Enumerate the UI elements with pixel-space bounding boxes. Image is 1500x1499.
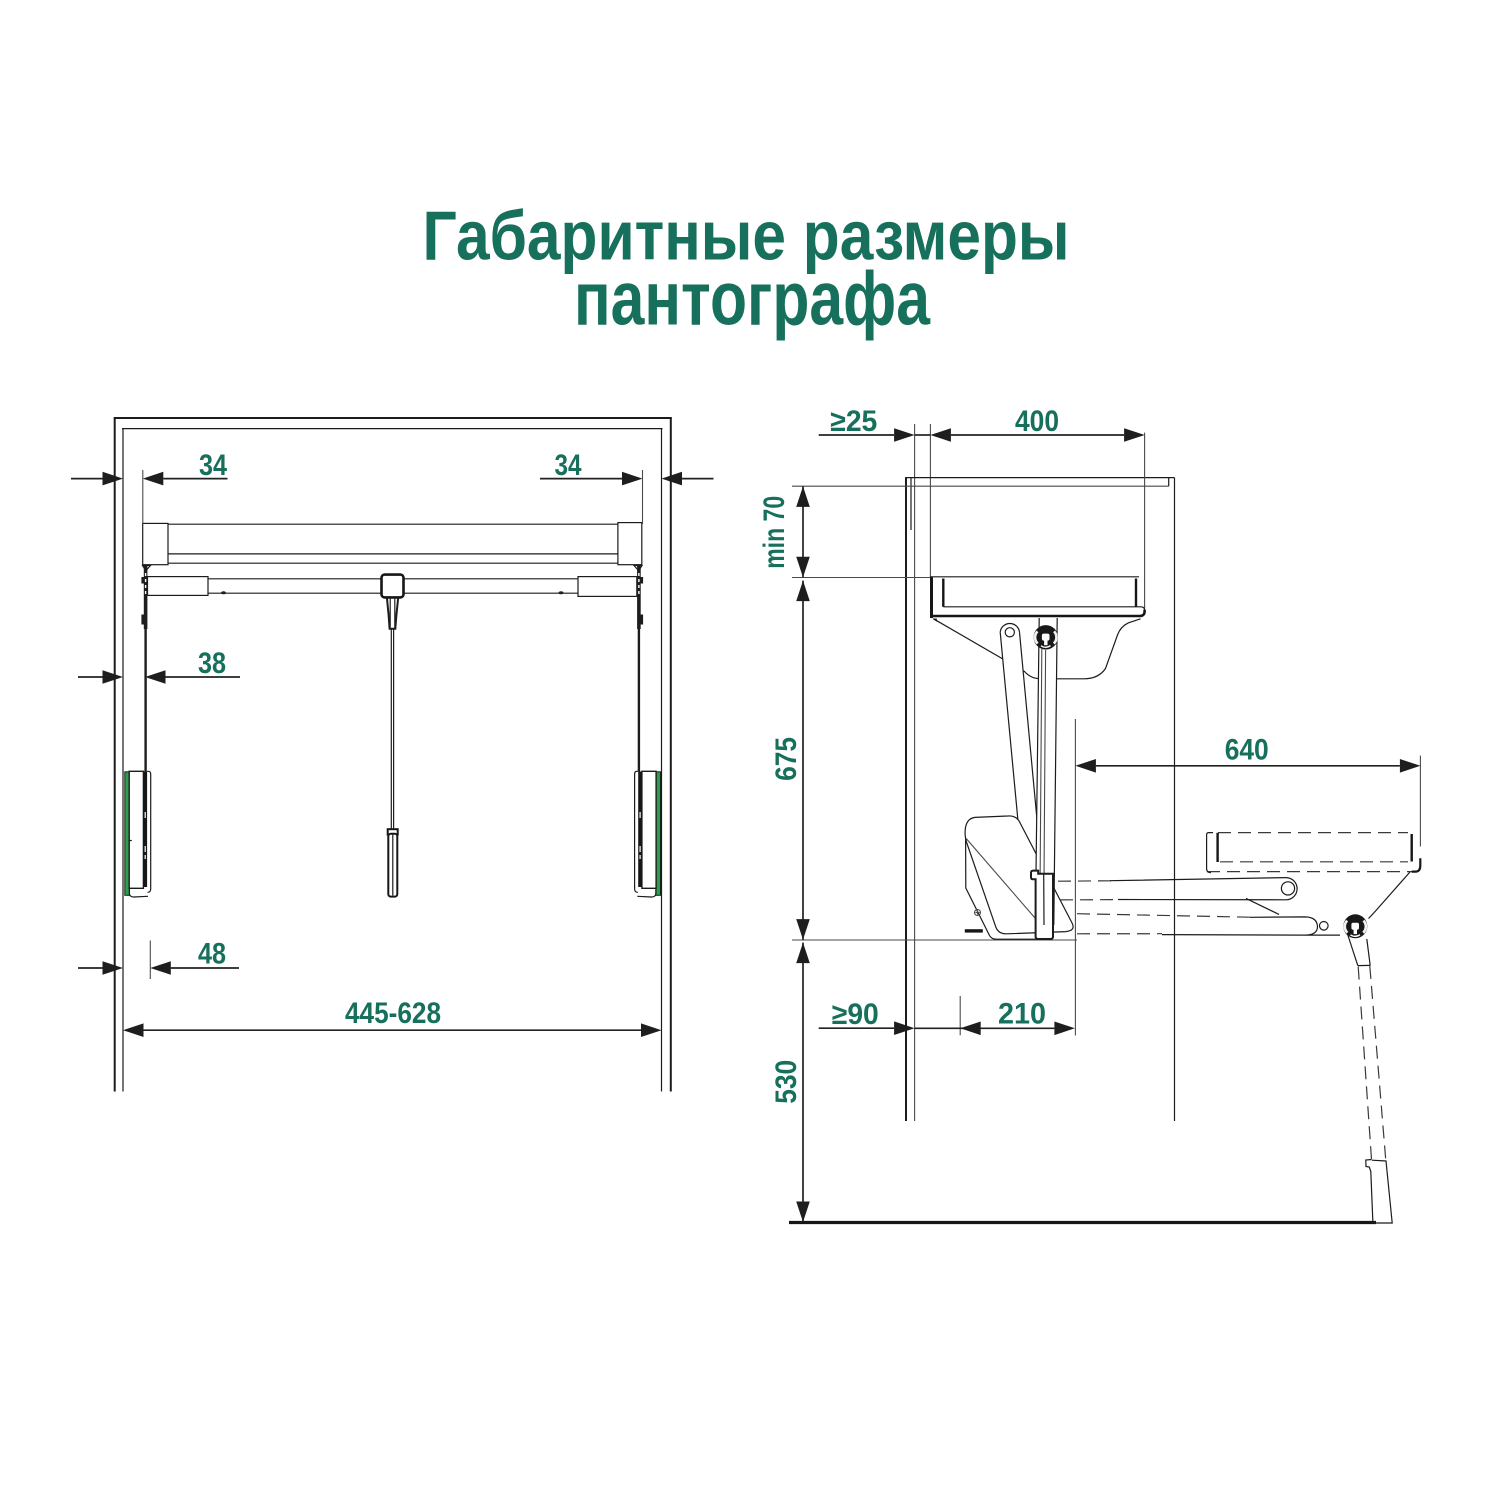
svg-text:445-628: 445-628 [345,997,441,1030]
svg-text:530: 530 [770,1060,803,1104]
svg-text:min 70: min 70 [758,496,791,569]
svg-text:пантографа: пантографа [574,257,931,342]
svg-text:≥90: ≥90 [832,998,879,1031]
svg-text:640: 640 [1225,734,1269,767]
svg-text:210: 210 [998,998,1046,1031]
svg-text:38: 38 [198,647,226,680]
svg-text:400: 400 [1015,405,1059,438]
svg-text:48: 48 [198,938,226,971]
svg-text:≥25: ≥25 [830,405,877,438]
svg-text:675: 675 [770,737,803,781]
svg-text:34: 34 [199,449,227,482]
svg-text:34: 34 [555,449,582,482]
